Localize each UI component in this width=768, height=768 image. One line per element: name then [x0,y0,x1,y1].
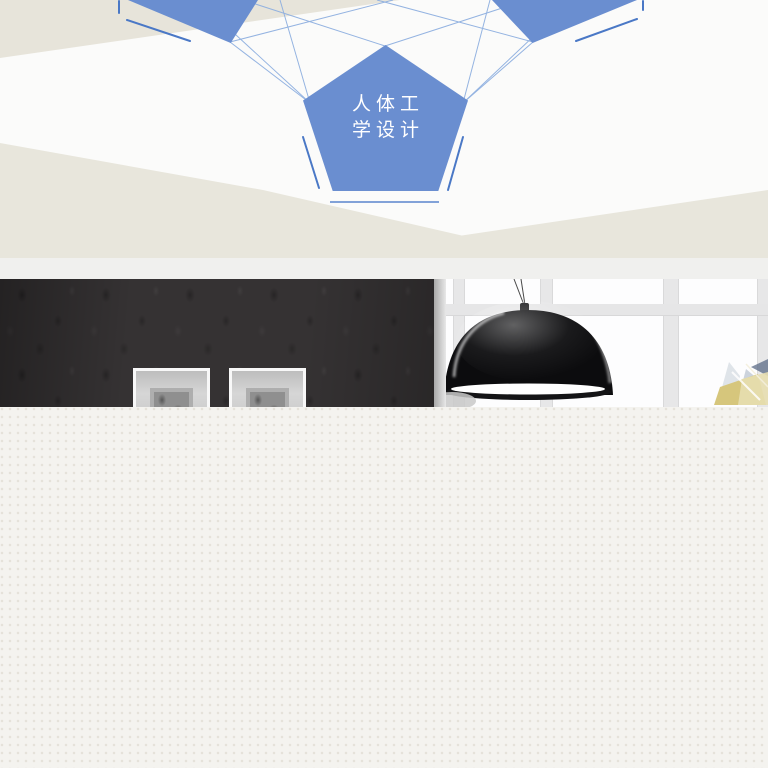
product-detail-segment: 人体工 学设计 [0,0,768,768]
dark-wallpaper-wall [0,279,434,407]
wall-corner-strip [434,279,446,407]
crystal-ornament [714,359,768,405]
empty-lower-area [0,407,768,768]
ergonomic-feature-diagram: 人体工 学设计 [0,0,768,258]
framed-print [150,388,193,407]
pendant-lamp-and-decor [446,279,768,407]
section-divider-band [0,258,768,279]
lamp-rim-diffuser [451,384,605,395]
picture-frame-left [133,368,210,407]
picture-frame-right [229,368,306,407]
framed-print [246,388,289,407]
lamp-shade [446,301,613,400]
window-wall [446,279,768,407]
product-scene-photo [0,279,768,407]
feature-label-line2: 学设计 [347,118,424,144]
feature-label-line1: 人体工 [347,92,424,118]
